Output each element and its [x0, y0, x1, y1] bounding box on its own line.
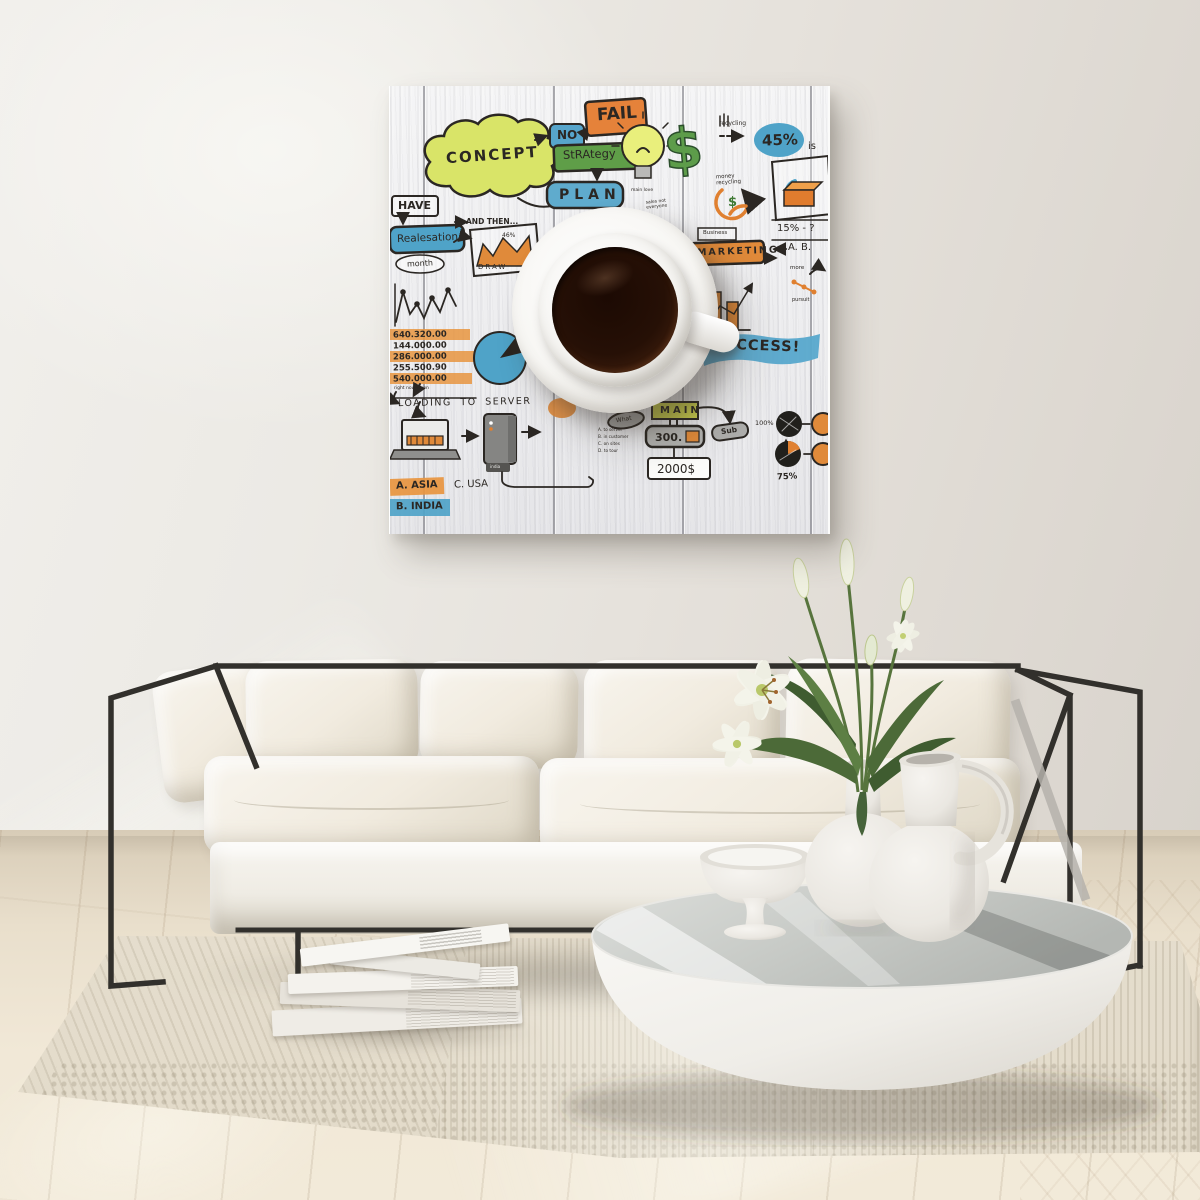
ab-label: A. B.: [788, 243, 811, 253]
lightbulb: [622, 125, 664, 167]
n300-label: 300.: [655, 432, 682, 443]
laptop-base: [390, 450, 460, 459]
bowl-vessel-inside: [708, 848, 802, 866]
business-label: Business: [703, 231, 727, 237]
server-list-item: D. to tour: [598, 449, 618, 453]
pct45-label: 45%: [762, 132, 798, 148]
have-label: HAVE: [398, 200, 431, 211]
dollar-sign: $: [662, 120, 706, 179]
figure-row: 540.000.00: [393, 375, 447, 384]
pct100-label: 100%: [755, 420, 774, 427]
figure-row: 286.000.00: [393, 353, 447, 362]
india-tag: india: [490, 465, 500, 469]
figures-note: right now down: [394, 387, 429, 392]
pct46-label: 46%: [502, 233, 515, 239]
draw-label: DRAW: [478, 264, 507, 271]
pct15-label: 15% - ?: [777, 224, 815, 234]
server-side: [508, 416, 516, 462]
canvas-wall-art: CONCEPT NO FAIL StRAtegy PLAN main love …: [389, 86, 830, 534]
strategy-label: StRAtegy: [563, 148, 616, 161]
n300-chip: [686, 431, 699, 442]
server-list-item: C. on sites: [598, 442, 620, 446]
bulb-base: [635, 166, 651, 178]
pct75-label: 75%: [777, 472, 798, 482]
is-label: is: [808, 142, 816, 152]
n2000-label: 2000$: [657, 463, 695, 475]
main-label: MAIN: [660, 406, 702, 416]
figure-row: 255.500.90: [393, 364, 447, 373]
recycling-label: recycling: [719, 121, 746, 127]
money-dollar: $: [728, 196, 737, 209]
server-list-item: B. in customer: [598, 435, 628, 439]
bowl-vessel-foot: [724, 924, 786, 940]
pursuit-label: pursuit: [792, 298, 810, 303]
line-chart: [396, 290, 456, 322]
realisation-label: Realesation: [397, 232, 458, 245]
orange-dot: [812, 413, 830, 435]
asia-label: A. ASIA: [396, 480, 438, 491]
loading-label: LOADING TO SERVER: [398, 397, 532, 409]
india-label: B. INDIA: [396, 502, 443, 513]
and-then-label: AND THEN...: [466, 218, 518, 226]
plan-label: PLAN: [559, 188, 621, 202]
sub-label: Sub: [721, 426, 738, 436]
figure-row: 640.320.00: [393, 331, 447, 340]
living-room-scene: CONCEPT NO FAIL StRAtegy PLAN main love …: [0, 0, 1200, 1200]
month-label: month: [407, 259, 433, 268]
figure-row: 144.000.00: [393, 342, 447, 351]
bulb-note: main love: [631, 189, 653, 194]
server-cable: [502, 472, 593, 487]
server-list-item: A. to server: [598, 428, 622, 432]
usa-label: C. USA: [454, 479, 488, 490]
brick-front: [784, 190, 814, 206]
no-label: NO: [557, 129, 577, 141]
fail-label: FAIL: [596, 105, 637, 125]
laptop-bar: [407, 436, 443, 445]
more-label: more: [790, 266, 804, 272]
orange-dot: [812, 443, 830, 465]
